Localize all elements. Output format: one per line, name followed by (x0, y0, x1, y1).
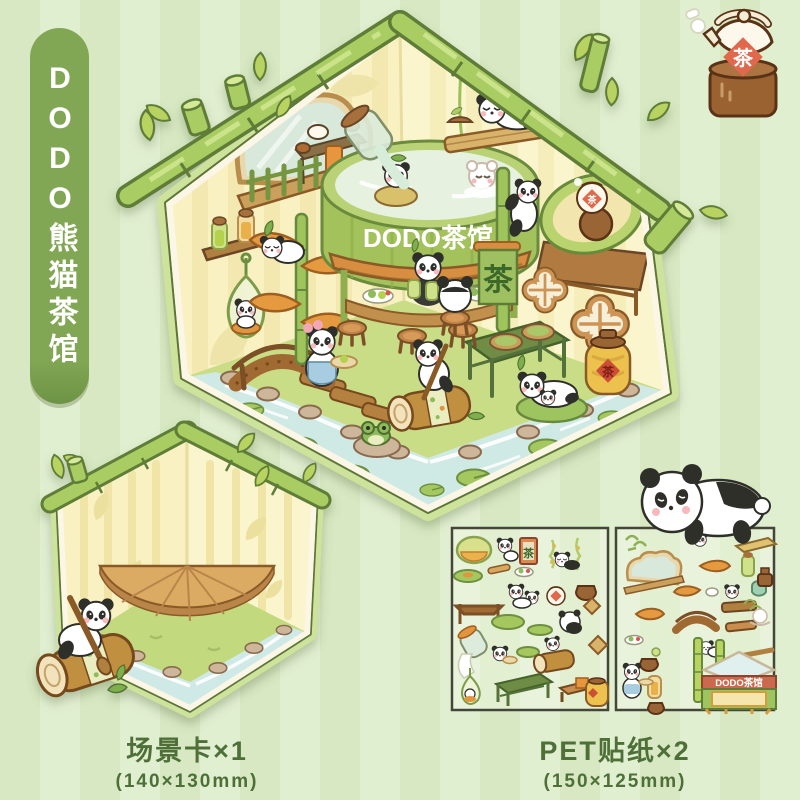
sticker-sheet-2: DODO茶馆 (616, 528, 776, 714)
avocado-teapot-char: 茶 (586, 194, 597, 205)
teapot-icon: 茶 (685, 8, 776, 116)
honey-jar: 茶 (586, 330, 630, 394)
bathing-bear (464, 161, 500, 198)
product-poster: DODO茶馆 (0, 0, 800, 800)
roof-bamboo-cup (67, 455, 88, 484)
seated-panda-back (437, 276, 473, 335)
sticker-sheet-count: PET贴纸×2 (453, 729, 777, 768)
sticker-honey-jar (586, 678, 608, 706)
scene-card-label: 场景卡×1 (140×130mm) (37, 729, 337, 793)
scene-card-count: 场景卡×1 (37, 729, 337, 768)
title-banner-text: DODO熊猫茶馆 (45, 62, 75, 370)
mini-shop-sign-text: DODO茶馆 (715, 677, 763, 689)
honey-jar-char: 茶 (601, 364, 615, 379)
teapot-char: 茶 (733, 47, 754, 70)
title-banner: DODO熊猫茶馆 (30, 28, 89, 404)
drink-jar (408, 280, 420, 298)
poster-art: DODO茶馆 (0, 0, 800, 800)
sticker-sheet-label: PET贴纸×2 (150×125mm) (453, 729, 777, 793)
flag-char: 茶 (483, 264, 514, 297)
sticker-teapot (547, 587, 565, 605)
steam (685, 8, 705, 33)
sticker-sheet-1: 茶 (452, 528, 608, 710)
drink-jar (426, 282, 438, 300)
scene-card-size: (140×130mm) (37, 771, 337, 793)
scroll-char: 茶 (522, 546, 535, 560)
scene-card (32, 430, 322, 711)
sticker-sheet-size: (150×125mm) (453, 771, 777, 793)
